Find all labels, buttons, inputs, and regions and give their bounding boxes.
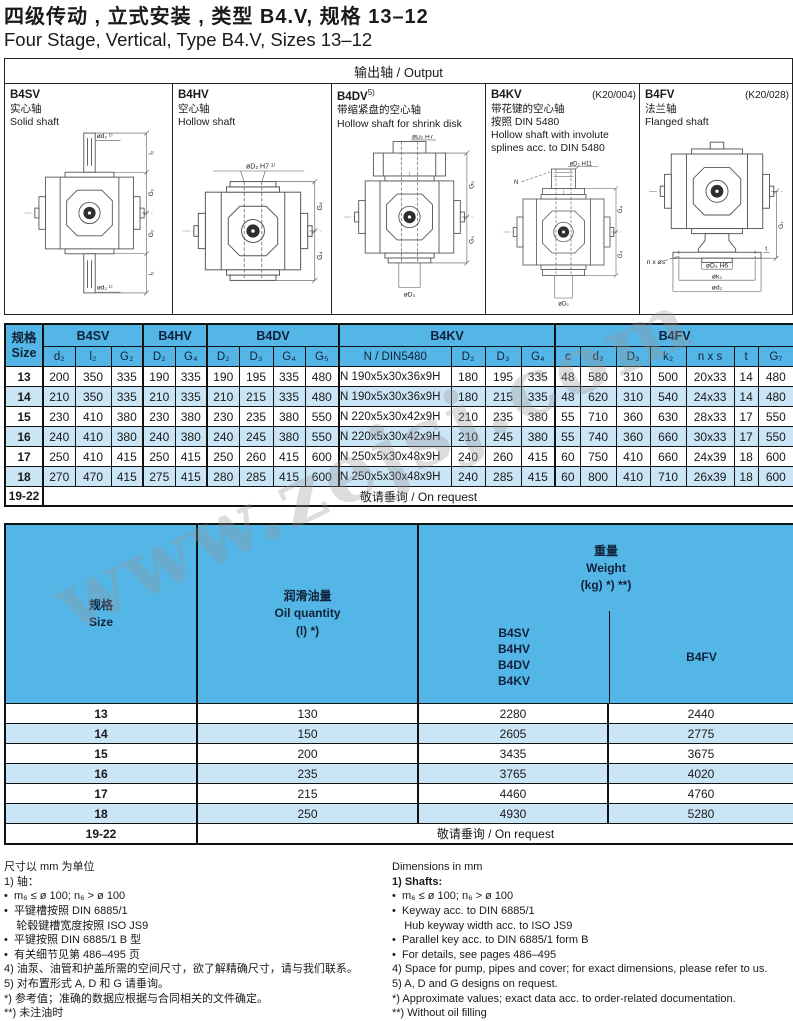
footnote-line: 1) Shafts: <box>392 875 790 890</box>
table-cell: 130 <box>197 704 418 724</box>
table-cell: 3435 <box>418 744 608 764</box>
table-cell: 410 <box>616 467 650 487</box>
weight-col-main-line: B4KV <box>419 673 609 689</box>
table-cell: 14 <box>734 387 758 407</box>
table-cell: 215 <box>239 387 273 407</box>
table-cell: N 190x5x30x36x9H <box>339 367 451 387</box>
group-b4kv: B4KV <box>339 324 555 347</box>
table-cell: 190 <box>207 367 239 387</box>
oil-header: 润滑油量 Oil quantity (l) *) <box>197 524 418 704</box>
table-cell: 260 <box>239 447 273 467</box>
table-cell: 3675 <box>608 744 793 764</box>
table-cell: 15 <box>5 744 197 764</box>
panel-desc-line: Solid shaft <box>10 116 169 129</box>
table-cell: 335 <box>111 367 143 387</box>
dim-label: øD₃ <box>404 291 416 298</box>
table-cell: 4760 <box>608 784 793 804</box>
col-header: n x s <box>686 347 734 367</box>
table-cell: 380 <box>175 427 207 447</box>
col-header: D₃ <box>485 347 521 367</box>
size-header-cn: 规格 <box>6 331 42 346</box>
footnote-line: Dimensions in mm <box>392 860 790 875</box>
table-cell: 2280 <box>418 704 608 724</box>
panel-code-row: B4FV(K20/028) <box>645 88 789 103</box>
panel-code: B4HV <box>178 89 209 101</box>
table-cell: N 220x5x30x42x9H <box>339 407 451 427</box>
footnote-line: 5) A, D and G designs on request. <box>392 977 790 992</box>
dim-label: G₅ <box>468 180 475 188</box>
table-cell: 18 <box>5 467 43 487</box>
footnote-line: **) 未注油时 <box>4 1006 392 1021</box>
table-cell: 275 <box>143 467 175 487</box>
oil-weight-table: 规格 Size 润滑油量 Oil quantity (l) *) 重量 Weig… <box>4 523 793 845</box>
footnote-line: • Parallel key acc. to DIN 6885/1 form B <box>392 933 790 948</box>
panel-desc-line: Hollow shaft <box>178 116 328 129</box>
size-header2: 规格 Size <box>5 524 197 704</box>
table-cell: 230 <box>43 407 75 427</box>
table-cell: 210 <box>451 427 485 447</box>
col-header: G₅ <box>305 347 339 367</box>
table-cell: 380 <box>175 407 207 427</box>
table-cell: 750 <box>580 447 616 467</box>
panel-desc-line: 带缩紧盘的空心轴 <box>337 104 482 117</box>
table-cell: 600 <box>758 447 793 467</box>
panel-desc-line: splines acc. to DIN 5480 <box>491 142 636 155</box>
table-cell: 24x33 <box>686 387 734 407</box>
col-header: t <box>734 347 758 367</box>
table-cell: 2775 <box>608 724 793 744</box>
footnote-line: **) Without oil filling <box>392 1006 790 1021</box>
table-cell: 4930 <box>418 804 608 824</box>
table-cell: 235 <box>485 407 521 427</box>
table-cell: 550 <box>305 407 339 427</box>
table-cell: 660 <box>650 447 686 467</box>
table-cell: 285 <box>239 467 273 487</box>
table-cell: 800 <box>580 467 616 487</box>
table-cell: 195 <box>239 367 273 387</box>
table-cell: 150 <box>197 724 418 744</box>
table-cell: 3765 <box>418 764 608 784</box>
table-cell: 18 <box>5 804 197 824</box>
col-header: c <box>555 347 580 367</box>
col-header: D₂ <box>143 347 175 367</box>
table-cell: 380 <box>111 407 143 427</box>
dim-label: øk₂ <box>712 273 723 280</box>
dim-label: G₄ <box>618 251 624 259</box>
panel-desc-line: 实心轴 <box>10 103 169 116</box>
panel-desc-line: 法兰轴 <box>645 103 789 116</box>
weight-col-main: B4SV B4HV B4DV B4KV <box>419 611 609 703</box>
table-cell: 190 <box>143 367 175 387</box>
panel-ref: (K20/028) <box>745 90 789 103</box>
table-cell: 500 <box>650 367 686 387</box>
panel-desc-line: 空心轴 <box>178 103 328 116</box>
table-cell: 260 <box>485 447 521 467</box>
table-cell: 360 <box>616 427 650 447</box>
table-row: 16240410380240380240245380550N 220x5x30x… <box>5 427 793 447</box>
table-row: 1623537654020 <box>5 764 793 784</box>
size-header: 规格 Size <box>5 324 43 367</box>
panel-desc-line: 按照 DIN 5480 <box>491 116 636 129</box>
table-cell: 660 <box>650 427 686 447</box>
table-cell: 415 <box>521 447 555 467</box>
col-header: d₂ <box>43 347 75 367</box>
weight-col-b4fv: B4FV <box>609 611 793 703</box>
table-cell: 17 <box>734 427 758 447</box>
b4kv-diagram: N øD₂ H11 G₄ G₄ ø <box>491 157 636 307</box>
table-cell: 620 <box>580 387 616 407</box>
table-cell: 240 <box>451 447 485 467</box>
panel-desc-line: Flanged shaft <box>645 116 789 129</box>
table-cell: 18 <box>734 467 758 487</box>
table-cell: 敬请垂询 / On request <box>43 487 793 507</box>
table-cell: 235 <box>197 764 418 784</box>
col-header: D₂ <box>451 347 485 367</box>
table-cell: 410 <box>75 447 111 467</box>
table-cell: 410 <box>75 407 111 427</box>
col-header: D₃ <box>239 347 273 367</box>
output-panels: B4SV实心轴Solid shaft ød₂ ¹⁾ <box>5 84 792 314</box>
table-cell: 4020 <box>608 764 793 784</box>
footnote-line: • 平键按照 DIN 6885/1 B 型 <box>4 933 392 948</box>
col-header: l₂ <box>75 347 111 367</box>
table-cell: 250 <box>197 804 418 824</box>
table-cell: 250 <box>43 447 75 467</box>
table-cell: 20x33 <box>686 367 734 387</box>
table-cell: 14 <box>5 387 43 407</box>
table-cell: 16 <box>5 764 197 784</box>
table-cell: 600 <box>305 467 339 487</box>
table-cell: 480 <box>758 387 793 407</box>
table-cell: 335 <box>175 367 207 387</box>
weight-subheader: B4SV B4HV B4DV B4KV B4FV <box>419 611 793 703</box>
dim-label: øD₂ H11 <box>570 161 593 167</box>
table-cell: 13 <box>5 704 197 724</box>
dim-label: øD₂ H7 <box>412 135 434 140</box>
table-cell: 285 <box>485 467 521 487</box>
table-cell: 55 <box>555 427 580 447</box>
table-cell: 28x33 <box>686 407 734 427</box>
panel-b4hv-head: B4HV空心轴Hollow shaft <box>178 88 328 129</box>
table-cell: 48 <box>555 387 580 407</box>
panel-desc-line: Hollow shaft for shrink disk <box>337 118 482 131</box>
table-cell: 380 <box>273 407 305 427</box>
oil-header-unit: (l) *) <box>198 623 417 640</box>
col-header: D₃ <box>616 347 650 367</box>
table-cell: 230 <box>143 407 175 427</box>
table-cell: 235 <box>239 407 273 427</box>
b4sv-diagram: ød₂ ¹⁾ l₂ G₂ G₂ l₂ <box>10 129 169 297</box>
col-header: G₄ <box>273 347 305 367</box>
weight-header-en: Weight <box>586 560 626 577</box>
col-header: G₄ <box>521 347 555 367</box>
request-row: 19-22敬请垂询 / On request <box>5 824 793 845</box>
page-title: 四级传动 , 立式安装 , 类型 B4.V, 规格 13–12 <box>4 6 793 29</box>
table-cell: 480 <box>758 367 793 387</box>
panel-b4dv: B4DV5)带缩紧盘的空心轴Hollow shaft for shrink di… <box>332 84 486 314</box>
table-cell: 415 <box>111 447 143 467</box>
table-cell: 335 <box>521 387 555 407</box>
panel-b4kv: B4KV(K20/004)带花键的空心轴按照 DIN 5480Hollow sh… <box>486 84 640 314</box>
table-cell: N 250x5x30x48x9H <box>339 447 451 467</box>
table-cell: 380 <box>273 427 305 447</box>
table-cell: 600 <box>305 447 339 467</box>
col-header: G₂ <box>111 347 143 367</box>
footnote-line: 4) 油泵、油管和护盖所需的空间尺寸，欲了解精确尺寸，请与我们联系。 <box>4 962 392 977</box>
col-header: G₇ <box>758 347 793 367</box>
footnote-line: *) 参考值；准确的数据应根据与合同相关的文件确定。 <box>4 992 392 1007</box>
table-cell: 310 <box>616 387 650 407</box>
output-section-header: 输出轴 / Output <box>5 59 792 84</box>
output-section: 输出轴 / Output B4SV实心轴Solid shaft ød₂ ¹⁾ <box>4 58 793 315</box>
panel-b4fv: B4FV(K20/028)法兰轴Flanged shaft n x øs t <box>640 84 792 314</box>
panel-code: B4SV <box>10 89 40 101</box>
table-cell: 26x39 <box>686 467 734 487</box>
table-row: 1721544604760 <box>5 784 793 804</box>
panel-code: B4DV <box>337 91 368 103</box>
dim-label: n x øs <box>647 259 666 266</box>
table-cell: 240 <box>143 427 175 447</box>
table-cell: 710 <box>650 467 686 487</box>
table-cell: 180 <box>451 387 485 407</box>
footnote-line: • 有关细节见第 486–495 页 <box>4 948 392 963</box>
table-cell: 180 <box>451 367 485 387</box>
table-row: 1520034353675 <box>5 744 793 764</box>
table-cell: 335 <box>273 367 305 387</box>
table-cell: 600 <box>758 467 793 487</box>
footnote-line: 1) 轴： <box>4 875 392 890</box>
dim-label: G₄ <box>468 235 475 243</box>
table-cell: 4460 <box>418 784 608 804</box>
table-cell: 410 <box>616 447 650 467</box>
dim-label: ød₂ ¹⁾ <box>97 133 113 140</box>
oil-weight-table-body: 1313022802440141502605277515200343536751… <box>5 704 793 845</box>
dim-label: G₂ <box>148 229 155 237</box>
table-cell: 415 <box>175 467 207 487</box>
b4dv-diagram: øD₂ H7 G₅ G₄ øD₃ <box>337 135 482 299</box>
table-row: 18270470415275415280285415600N 250x5x30x… <box>5 467 793 487</box>
dim-label: l₂ <box>148 271 155 275</box>
table-cell: 245 <box>239 427 273 447</box>
table-cell: 630 <box>650 407 686 427</box>
weight-col-main-line: B4HV <box>419 641 609 657</box>
table-cell: 210 <box>207 387 239 407</box>
col-header: N / DIN5480 <box>339 347 451 367</box>
footnote-line: 5) 对布置形式 A, D 和 G 请垂询。 <box>4 977 392 992</box>
page-subtitle: Four Stage, Vertical, Type B4.V, Sizes 1… <box>4 29 793 51</box>
table-cell: 60 <box>555 447 580 467</box>
dim-label: G₂ <box>148 188 155 196</box>
dim-label: l₂ <box>148 150 155 154</box>
dim-label: ød₂ <box>712 284 723 291</box>
catalog-page: 四级传动 , 立式安装 , 类型 B4.V, 规格 13–12 Four Sta… <box>0 0 793 1021</box>
panel-ref: (K20/004) <box>592 90 636 103</box>
panel-desc-line: 带花键的空心轴 <box>491 103 636 116</box>
dim-label: ød₂ ¹⁾ <box>97 284 113 291</box>
dim-label: G₇ <box>778 221 785 229</box>
request-row: 19-22敬请垂询 / On request <box>5 487 793 507</box>
col-header: d₂ <box>580 347 616 367</box>
table-cell: N 250x5x30x48x9H <box>339 467 451 487</box>
table-cell: 280 <box>207 467 239 487</box>
table-cell: 48 <box>555 367 580 387</box>
table-cell: 470 <box>75 467 111 487</box>
panel-b4sv: B4SV实心轴Solid shaft ød₂ ¹⁾ <box>5 84 173 314</box>
panel-desc-line: Hollow shaft with involute <box>491 129 636 142</box>
panel-code: B4FV <box>645 89 674 101</box>
table-cell: 16 <box>5 427 43 447</box>
table-cell: 550 <box>758 427 793 447</box>
table-cell: 360 <box>616 407 650 427</box>
table-cell: 敬请垂询 / On request <box>197 824 793 845</box>
table-cell: 480 <box>305 367 339 387</box>
footnotes-en: Dimensions in mm1) Shafts:• m₆ ≤ ø 100; … <box>392 860 790 1021</box>
table-cell: 415 <box>111 467 143 487</box>
panel-code-sup: 5) <box>368 88 375 97</box>
table-cell: 380 <box>521 407 555 427</box>
footnote-line: • m₆ ≤ ø 100; n₆ > ø 100 <box>392 889 790 904</box>
table-cell: 415 <box>273 467 305 487</box>
dim-label: G₄ <box>317 251 324 259</box>
panel-code-row: B4KV(K20/004) <box>491 88 636 103</box>
group-b4hv: B4HV <box>143 324 207 347</box>
dim-label: t <box>765 246 767 253</box>
col-header: k₂ <box>650 347 686 367</box>
table-row: 1415026052775 <box>5 724 793 744</box>
table-cell: 335 <box>175 387 207 407</box>
panel-b4fv-head: B4FV(K20/028)法兰轴Flanged shaft <box>645 88 789 129</box>
table-cell: N 190x5x30x36x9H <box>339 387 451 407</box>
table-cell: 335 <box>111 387 143 407</box>
table-cell: 415 <box>273 447 305 467</box>
footnotes-cn: 尺寸以 mm 为单位1) 轴：• m₆ ≤ ø 100; n₆ > ø 100•… <box>4 860 392 1021</box>
table-cell: 2440 <box>608 704 793 724</box>
table-row: 15230410380230380230235380550N 220x5x30x… <box>5 407 793 427</box>
weight-header: 重量 Weight (kg) *) **) B4SV B4HV B4DV B4K… <box>418 524 793 704</box>
panel-b4kv-head: B4KV(K20/004)带花键的空心轴按照 DIN 5480Hollow sh… <box>491 88 636 155</box>
group-b4sv: B4SV <box>43 324 143 347</box>
dim-label: G₄ <box>618 206 624 214</box>
weight-header-cn: 重量 <box>594 543 618 560</box>
table-cell: 410 <box>75 427 111 447</box>
table-cell: 55 <box>555 407 580 427</box>
footnote-line: • 平键槽按照 DIN 6885/1 <box>4 904 392 919</box>
table-cell: 250 <box>143 447 175 467</box>
table-cell: 550 <box>305 427 339 447</box>
table-cell: 17 <box>734 407 758 427</box>
table-cell: 240 <box>451 467 485 487</box>
table-cell: 19-22 <box>5 487 43 507</box>
table-cell: 350 <box>75 367 111 387</box>
table-cell: 270 <box>43 467 75 487</box>
footnote-line: • For details, see pages 486–495 <box>392 948 790 963</box>
table-row: 14210350335210335210215335480N 190x5x30x… <box>5 387 793 407</box>
table-cell: 540 <box>650 387 686 407</box>
table-cell: 30x33 <box>686 427 734 447</box>
table-cell: 215 <box>485 387 521 407</box>
table-cell: 210 <box>143 387 175 407</box>
table-cell: 24x39 <box>686 447 734 467</box>
weight-col-main-line: B4SV <box>419 625 609 641</box>
group-b4dv: B4DV <box>207 324 339 347</box>
group-b4fv: B4FV <box>555 324 793 347</box>
table-cell: 335 <box>521 367 555 387</box>
size-header2-cn: 规格 <box>6 597 196 614</box>
weight-header-unit: (kg) *) **) <box>581 577 632 594</box>
panel-code-row: B4DV5) <box>337 88 482 104</box>
oil-header-en: Oil quantity <box>198 605 417 622</box>
table-cell: 19-22 <box>5 824 197 845</box>
table-cell: 580 <box>580 367 616 387</box>
table-cell: 550 <box>758 407 793 427</box>
footnotes: 尺寸以 mm 为单位1) 轴：• m₆ ≤ ø 100; n₆ > ø 100•… <box>4 860 793 1021</box>
size-header-en: Size <box>6 346 42 361</box>
dim-label: N <box>514 180 518 186</box>
oil-header-cn: 润滑油量 <box>198 588 417 605</box>
table-cell: 200 <box>43 367 75 387</box>
panel-b4hv: B4HV空心轴Hollow shaft øD₂ H7 ¹⁾ <box>173 84 332 314</box>
col-header: D₂ <box>207 347 239 367</box>
table-cell: 250 <box>207 447 239 467</box>
table-cell: 310 <box>616 367 650 387</box>
table-cell: N 220x5x30x42x9H <box>339 427 451 447</box>
col-header: G₄ <box>175 347 207 367</box>
panel-b4dv-head: B4DV5)带缩紧盘的空心轴Hollow shaft for shrink di… <box>337 88 482 130</box>
dim-label: øD₂ H7 ¹⁾ <box>246 162 275 170</box>
table-cell: 15 <box>5 407 43 427</box>
b4hv-diagram: øD₂ H7 ¹⁾ G₄ G₄ <box>178 147 328 314</box>
table-cell: 2605 <box>418 724 608 744</box>
panel-code: B4KV <box>491 89 522 101</box>
table-cell: 14 <box>734 367 758 387</box>
footnote-line: *) Approximate values; exact data acc. t… <box>392 992 790 1007</box>
table-cell: 480 <box>305 387 339 407</box>
weight-col-main-line: B4DV <box>419 657 609 673</box>
panel-b4sv-head: B4SV实心轴Solid shaft <box>10 88 169 129</box>
table-row: 17250410415250415250260415600N 250x5x30x… <box>5 447 793 467</box>
footnote-line: 尺寸以 mm 为单位 <box>4 860 392 875</box>
table-cell: 60 <box>555 467 580 487</box>
table-cell: 245 <box>485 427 521 447</box>
size-header2-en: Size <box>6 614 196 631</box>
dim-label: øD₃ H6 <box>706 262 729 269</box>
dim-label: G₄ <box>317 202 324 210</box>
table-cell: 210 <box>43 387 75 407</box>
table-cell: 740 <box>580 427 616 447</box>
table-cell: 335 <box>273 387 305 407</box>
weight-header-title: 重量 Weight (kg) *) **) <box>419 525 793 611</box>
table-cell: 13 <box>5 367 43 387</box>
table-cell: 5280 <box>608 804 793 824</box>
footnote-line: • m₆ ≤ ø 100; n₆ > ø 100 <box>4 889 392 904</box>
dimension-table-body: 13200350335190335190195335480N 190x5x30x… <box>5 367 793 507</box>
dimension-table: 规格 Size B4SV B4HV B4DV B4KV B4FV d₂ l₂ G… <box>4 323 793 507</box>
footnote-line: Hub keyway width acc. to ISO JS9 <box>392 919 790 934</box>
table-cell: 17 <box>5 447 43 467</box>
footnote-line: 4) Space for pump, pipes and cover; for … <box>392 962 790 977</box>
table-cell: 240 <box>43 427 75 447</box>
table-cell: 350 <box>75 387 111 407</box>
table-cell: 215 <box>197 784 418 804</box>
footnote-line: 轮毂键槽宽度按照 ISO JS9 <box>4 919 392 934</box>
table-cell: 195 <box>485 367 521 387</box>
b4fv-diagram: n x øs t øD₃ H6 øk₂ ød₂ <box>645 131 789 299</box>
table-cell: 17 <box>5 784 197 804</box>
panel-code-row: B4HV <box>178 88 328 102</box>
table-cell: 230 <box>207 407 239 427</box>
table-cell: 415 <box>521 467 555 487</box>
table-cell: 710 <box>580 407 616 427</box>
